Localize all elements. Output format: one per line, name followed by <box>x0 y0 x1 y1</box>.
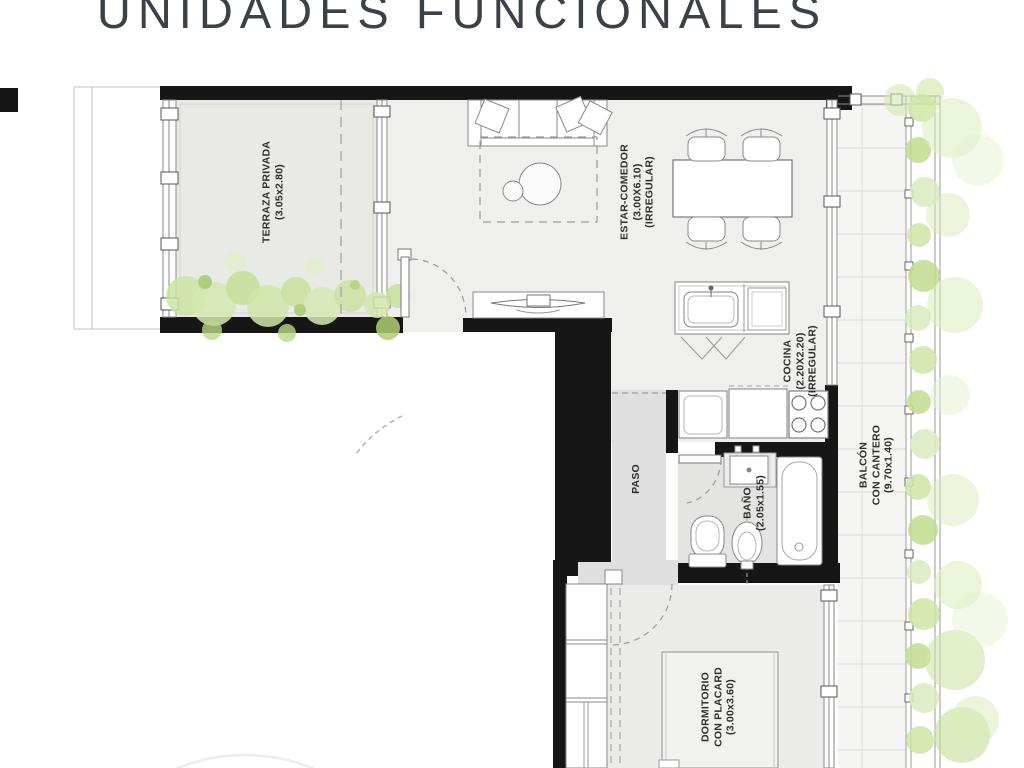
label-paso: PASO <box>630 464 643 494</box>
room-name-2: CON CANTERO <box>870 425 883 505</box>
room-name: TERRAZA PRIVADA <box>261 141 274 243</box>
room-name-2: CON PLACARD <box>712 667 725 747</box>
page-title: UNIDADES FUNCIONALES <box>97 0 827 39</box>
room-dims: (2.05x1.55) <box>754 475 767 531</box>
room-dims: (3.00x3.60) <box>724 667 737 747</box>
label-terraza: TERRAZA PRIVADA (3.05x2.80) <box>261 141 286 243</box>
label-balcon: BALCÓN CON CANTERO (9.70x1.40) <box>857 425 895 505</box>
toilet <box>689 516 726 567</box>
room-dims: (3.05x2.80) <box>273 141 286 243</box>
kitchen-appliance-row <box>679 386 789 438</box>
label-cocina: COCINA (2.20X2.20) (IRREGULAR) <box>781 325 819 397</box>
floor-plan-drawing <box>0 0 1024 768</box>
label-bano: BAÑO (2.05x1.55) <box>742 475 767 531</box>
room-name: COCINA <box>781 325 794 397</box>
stove <box>789 391 828 438</box>
room-name: ESTAR-COMEDOR <box>618 144 631 240</box>
room-note: (IRREGULAR) <box>806 325 819 397</box>
room-name: BALCÓN <box>857 425 870 505</box>
bathtub <box>777 457 822 565</box>
room-name: DORMITORIO <box>699 667 712 747</box>
room-name: BAÑO <box>742 475 755 531</box>
tv-unit <box>473 292 604 318</box>
label-estar: ESTAR-COMEDOR (3.00X6.10) (IRREGULAR) <box>618 144 656 240</box>
room-note: (IRREGULAR) <box>643 144 656 240</box>
sofa <box>468 96 612 146</box>
floor-plan-page: UNIDADES FUNCIONALES TERRAZA PRIVADA (3.… <box>0 0 1024 768</box>
room-dims: (2.20X2.20) <box>794 325 807 397</box>
room-dims: (3.00X6.10) <box>631 144 644 240</box>
room-dims: (9.70x1.40) <box>882 425 895 505</box>
room-name: PASO <box>630 464 643 494</box>
watermark-circle <box>65 755 425 768</box>
neighbor-outline <box>74 87 160 329</box>
label-dormitorio: DORMITORIO CON PLACARD (3.00x3.60) <box>699 667 737 747</box>
dining-table <box>673 160 792 217</box>
